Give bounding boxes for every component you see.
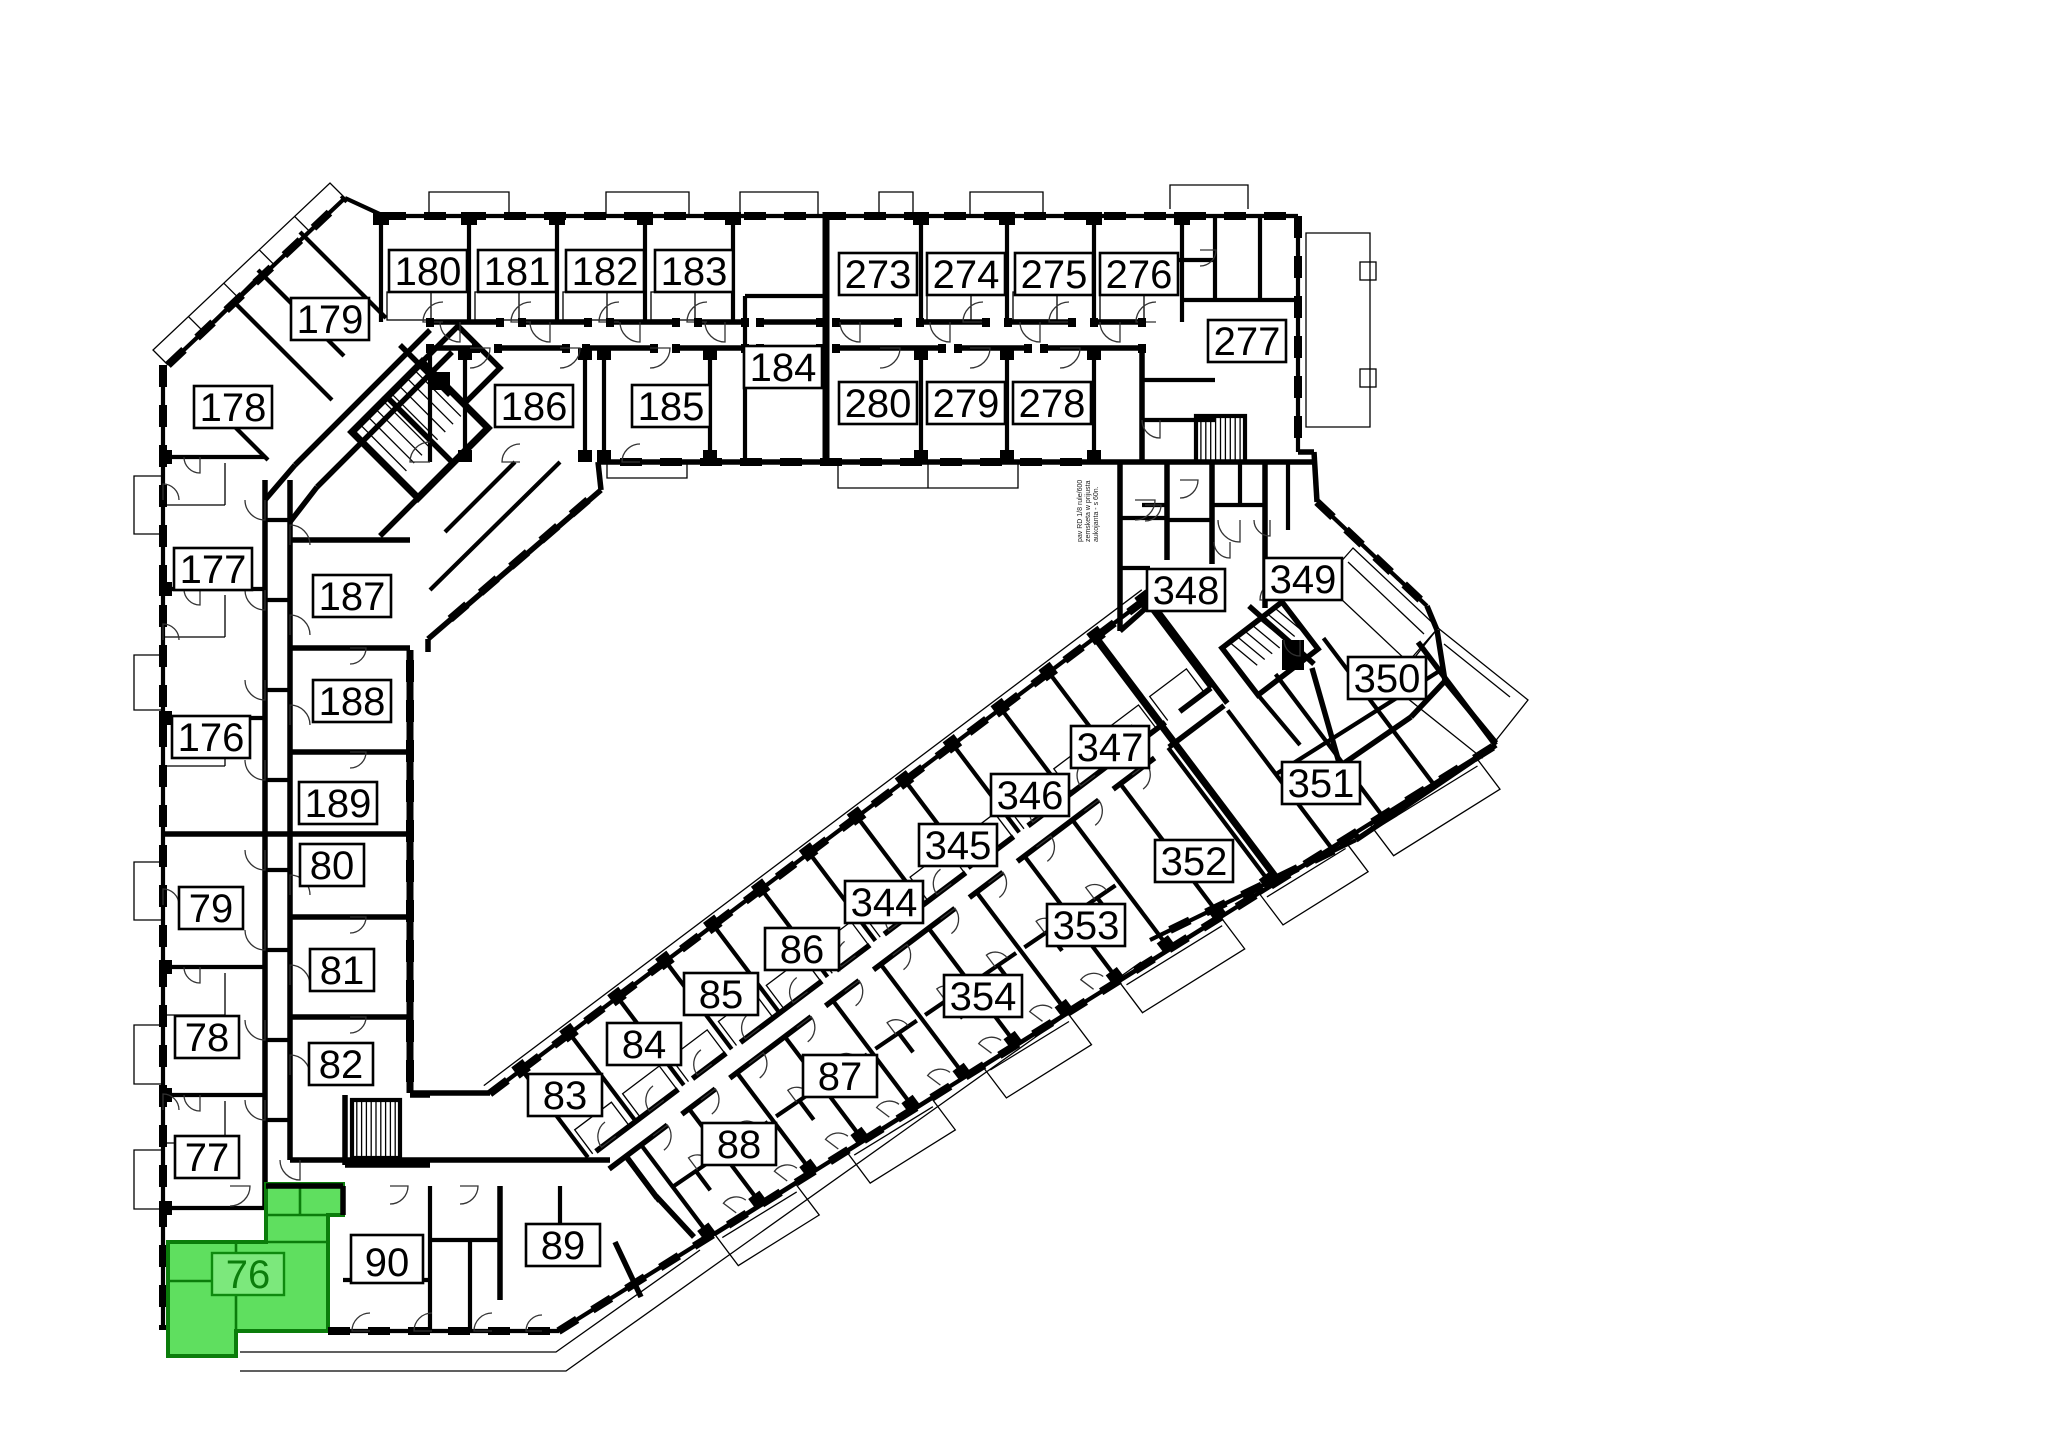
svg-text:85: 85 [699,973,744,1017]
svg-text:178: 178 [200,386,267,430]
svg-text:zemsketa w prijusta: zemsketa w prijusta [1085,480,1092,542]
svg-text:79: 79 [189,887,234,931]
svg-text:183: 183 [661,250,728,294]
svg-text:352: 352 [1161,840,1228,884]
svg-text:350: 350 [1354,657,1421,701]
svg-text:186: 186 [501,385,568,429]
svg-text:83: 83 [543,1074,588,1118]
svg-text:80: 80 [310,844,355,888]
svg-text:184: 184 [750,346,817,390]
svg-text:76: 76 [226,1253,271,1297]
svg-text:280: 280 [845,382,912,426]
svg-text:188: 188 [319,680,386,724]
svg-text:348: 348 [1153,569,1220,613]
svg-text:78: 78 [185,1016,230,1060]
svg-text:181: 181 [484,250,551,294]
svg-text:aukojanta - s 60n.: aukojanta - s 60n. [1093,486,1100,542]
svg-text:345: 345 [925,824,992,868]
svg-text:81: 81 [320,949,365,993]
svg-text:351: 351 [1288,762,1355,806]
svg-text:274: 274 [933,253,1000,297]
svg-text:86: 86 [780,928,825,972]
svg-text:276: 276 [1106,253,1173,297]
svg-text:82: 82 [319,1043,364,1087]
svg-text:278: 278 [1019,382,1086,426]
svg-text:179: 179 [297,298,364,342]
svg-text:279: 279 [933,382,1000,426]
svg-text:277: 277 [1214,320,1281,364]
svg-text:346: 346 [997,774,1064,818]
svg-text:90: 90 [365,1241,410,1285]
svg-text:182: 182 [572,250,639,294]
svg-text:187: 187 [319,575,386,619]
svg-text:180: 180 [395,250,462,294]
svg-text:89: 89 [541,1224,586,1268]
svg-text:87: 87 [818,1055,863,1099]
svg-text:177: 177 [180,548,247,592]
svg-text:176: 176 [178,716,245,760]
svg-text:344: 344 [851,881,918,925]
svg-text:88: 88 [717,1123,762,1167]
svg-text:273: 273 [845,253,912,297]
svg-text:275: 275 [1021,253,1088,297]
svg-text:349: 349 [1270,558,1337,602]
svg-text:185: 185 [638,385,705,429]
svg-text:353: 353 [1053,904,1120,948]
svg-text:347: 347 [1077,726,1144,770]
svg-text:84: 84 [622,1023,667,1067]
svg-text:pav RD 1/8 rule/600: pav RD 1/8 rule/600 [1077,480,1084,542]
svg-text:189: 189 [305,782,372,826]
svg-text:354: 354 [950,975,1017,1019]
svg-text:77: 77 [185,1136,230,1180]
